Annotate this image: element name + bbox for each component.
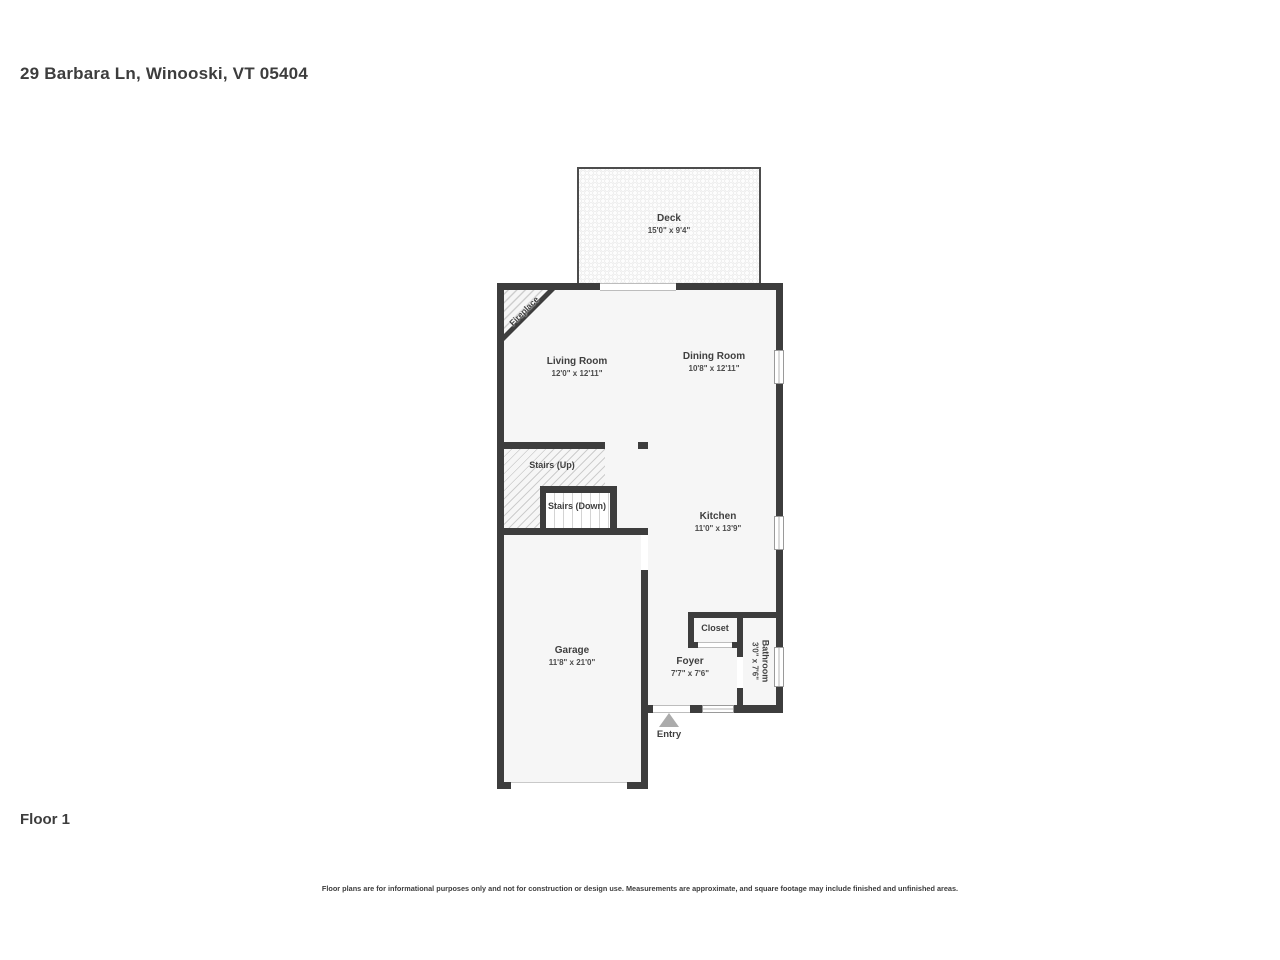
garage-side-door-opening (641, 535, 648, 570)
room-dims: 7'7" x 7'6" (671, 669, 709, 679)
wall (497, 283, 600, 290)
wall (497, 782, 511, 789)
entry-arrow-icon (659, 713, 679, 727)
room-dims: 12'0" x 12'11" (547, 369, 608, 379)
room-label-stairs-down: Stairs (Down) (548, 501, 606, 511)
room-label-closet: Closet (701, 623, 729, 633)
wall (688, 642, 698, 648)
room-label-dining-room: Dining Room 10'8" x 12'11" (683, 351, 745, 373)
floor-fill-garage (497, 713, 648, 789)
entry-door-opening (653, 705, 690, 713)
wall (540, 486, 617, 493)
wall (497, 283, 504, 789)
room-name: Garage (549, 645, 596, 657)
room-label-bathroom: Bathroom 3'0" x 7'6" (750, 640, 771, 683)
wall (497, 528, 648, 535)
floor-title: Floor 1 (20, 811, 70, 828)
room-name: Living Room (547, 356, 608, 368)
deck-door-opening (600, 283, 676, 291)
room-name: Stairs (Up) (529, 460, 575, 470)
floor-plan-page: 29 Barbara Ln, Winooski, VT 05404 (0, 0, 1280, 960)
garage-door (511, 782, 627, 789)
room-dims: 10'8" x 12'11" (683, 364, 745, 374)
room-label-living-room: Living Room 12'0" x 12'11" (547, 356, 608, 378)
room-name: Kitchen (695, 511, 742, 523)
room-name: Deck (648, 213, 691, 225)
wall (676, 283, 783, 290)
window (774, 516, 784, 550)
closet-door-opening (698, 642, 732, 648)
window (774, 647, 784, 687)
window (774, 350, 784, 384)
room-dims: 11'0" x 13'9" (695, 524, 742, 534)
wall (497, 442, 605, 449)
room-name: Stairs (Down) (548, 501, 606, 511)
room-dims: 3'0" x 7'6" (750, 640, 760, 683)
room-label-foyer: Foyer 7'7" x 7'6" (671, 656, 709, 678)
bathroom-door-opening (737, 657, 743, 688)
room-label-garage: Garage 11'8" x 21'0" (549, 645, 596, 667)
room-name: Closet (701, 623, 729, 633)
wall (610, 486, 617, 532)
disclaimer-text: Floor plans are for informational purpos… (0, 884, 1280, 893)
room-name: Foyer (671, 656, 709, 668)
room-label-stairs-up: Stairs (Up) (529, 460, 575, 470)
floor-plan: Fireplace Deck 15'0" x 9'4" Living Room … (0, 0, 1280, 960)
window (702, 705, 734, 713)
wall-stub (638, 442, 648, 449)
wall (688, 612, 783, 618)
room-dims: 11'8" x 21'0" (549, 658, 596, 668)
wall (737, 612, 743, 657)
room-name: Dining Room (683, 351, 745, 363)
entry-label: Entry (657, 729, 681, 740)
wall (737, 688, 743, 707)
wall (641, 570, 648, 789)
room-label-kitchen: Kitchen 11'0" x 13'9" (695, 511, 742, 533)
room-label-deck: Deck 15'0" x 9'4" (648, 213, 691, 235)
room-dims: 15'0" x 9'4" (648, 226, 691, 236)
room-name: Bathroom (760, 640, 770, 683)
wall (627, 782, 648, 789)
